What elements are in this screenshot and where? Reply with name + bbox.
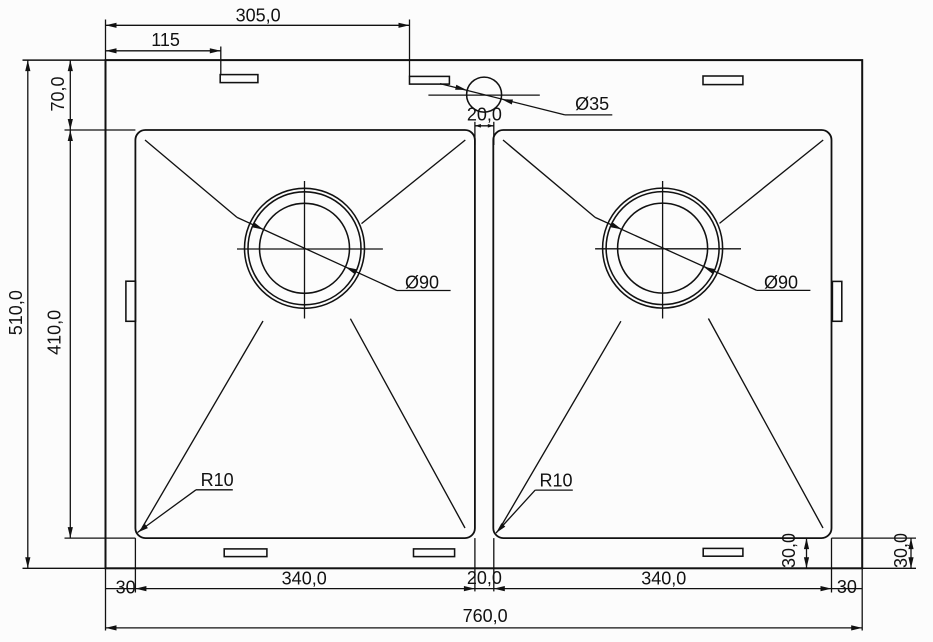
svg-text:30,0: 30,0 xyxy=(779,533,799,568)
svg-text:340,0: 340,0 xyxy=(282,569,327,589)
svg-text:115: 115 xyxy=(151,30,180,50)
svg-text:510,0: 510,0 xyxy=(6,290,26,335)
svg-text:Ø35: Ø35 xyxy=(575,94,609,114)
svg-text:340,0: 340,0 xyxy=(641,569,686,589)
svg-text:410,0: 410,0 xyxy=(45,310,65,355)
svg-text:70,0: 70,0 xyxy=(48,76,68,111)
svg-text:Ø90: Ø90 xyxy=(764,273,798,293)
svg-text:30: 30 xyxy=(116,577,136,597)
svg-text:Ø90: Ø90 xyxy=(405,273,439,293)
svg-text:760,0: 760,0 xyxy=(463,606,508,626)
svg-text:30: 30 xyxy=(837,577,857,597)
svg-text:30,0: 30,0 xyxy=(891,533,911,568)
svg-text:R10: R10 xyxy=(539,471,572,491)
svg-text:20,0: 20,0 xyxy=(467,105,502,125)
svg-text:305,0: 305,0 xyxy=(236,5,281,25)
svg-text:R10: R10 xyxy=(201,470,234,490)
svg-text:20,0: 20,0 xyxy=(467,568,502,588)
